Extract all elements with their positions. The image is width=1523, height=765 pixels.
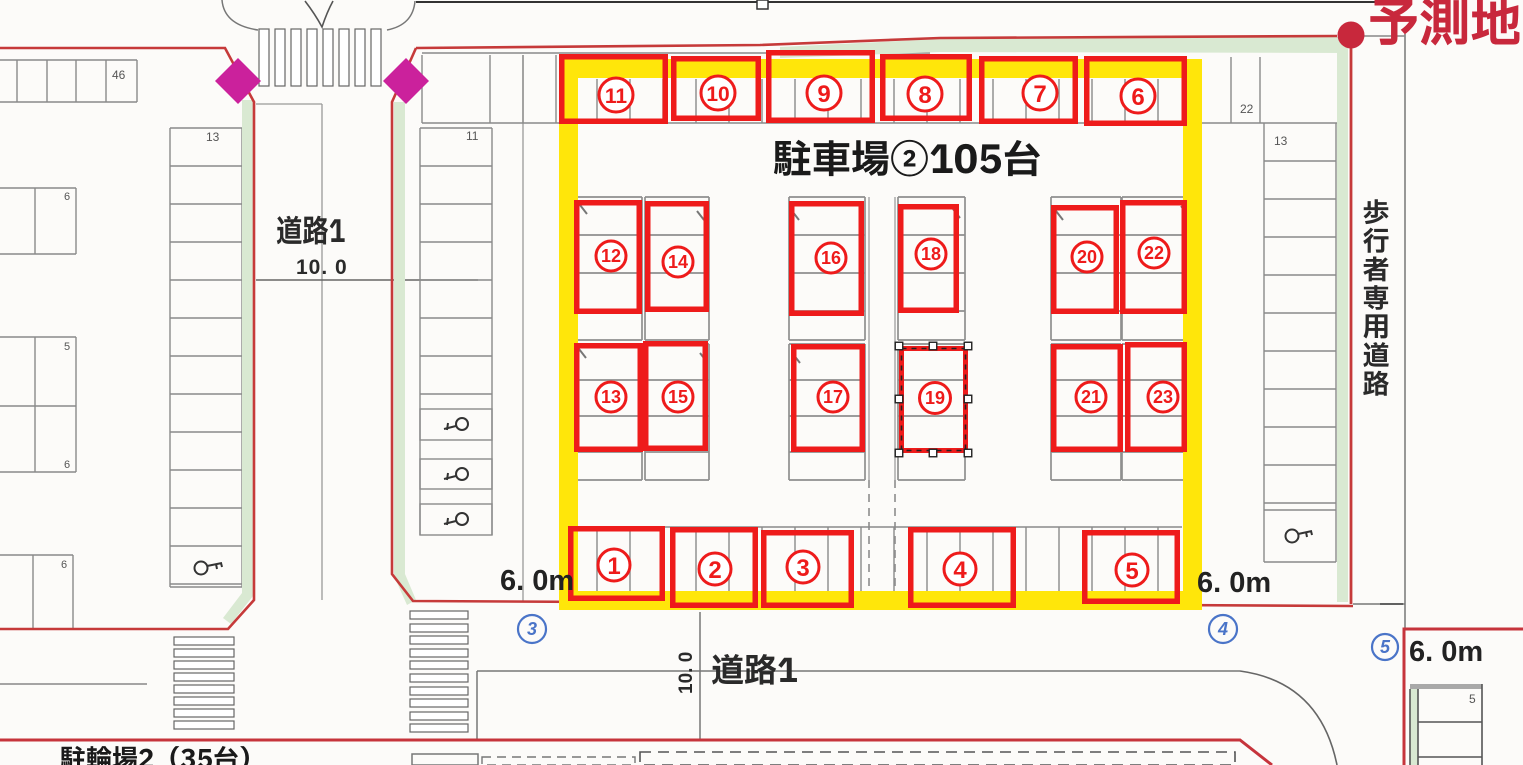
svg-text:3: 3 (527, 619, 537, 639)
svg-text:23: 23 (1153, 387, 1173, 407)
svg-text:8: 8 (918, 82, 931, 109)
svg-text:17: 17 (823, 387, 843, 407)
svg-text:6. 0m: 6. 0m (1409, 636, 1483, 668)
svg-text:6: 6 (61, 559, 67, 571)
svg-text:6: 6 (1131, 84, 1144, 111)
svg-text:13: 13 (206, 130, 220, 144)
svg-text:13: 13 (601, 387, 621, 407)
svg-text:15: 15 (668, 387, 688, 407)
svg-text:19: 19 (925, 388, 945, 408)
svg-text:16: 16 (821, 248, 841, 268)
svg-text:11: 11 (466, 129, 479, 143)
svg-text:5: 5 (1125, 558, 1138, 585)
svg-text:3: 3 (796, 555, 809, 582)
svg-text:12: 12 (601, 246, 621, 266)
svg-text:2: 2 (708, 557, 721, 584)
svg-text:4: 4 (1217, 619, 1228, 639)
svg-text:18: 18 (921, 244, 941, 264)
svg-text:1: 1 (607, 553, 620, 580)
svg-text:46: 46 (112, 68, 126, 82)
svg-text:14: 14 (668, 252, 688, 272)
svg-text:9: 9 (817, 81, 830, 108)
svg-text:22: 22 (1240, 102, 1254, 116)
svg-text:5: 5 (1469, 692, 1476, 706)
svg-text:4: 4 (953, 557, 967, 584)
svg-text:10. 0: 10. 0 (676, 652, 697, 694)
svg-text:7: 7 (1033, 81, 1046, 108)
svg-text:6: 6 (64, 459, 70, 471)
svg-text:6. 0m: 6. 0m (500, 565, 574, 597)
svg-text:5: 5 (64, 341, 70, 353)
svg-text:10: 10 (706, 83, 729, 106)
svg-text:10. 0: 10. 0 (296, 256, 348, 279)
svg-text:13: 13 (1274, 134, 1288, 148)
svg-text:21: 21 (1081, 387, 1101, 407)
svg-text:6: 6 (64, 191, 70, 203)
svg-text:6. 0m: 6. 0m (1197, 567, 1271, 599)
svg-text:22: 22 (1144, 243, 1164, 263)
svg-text:11: 11 (605, 85, 628, 108)
svg-text:5: 5 (1380, 637, 1391, 657)
svg-text:20: 20 (1077, 247, 1097, 267)
